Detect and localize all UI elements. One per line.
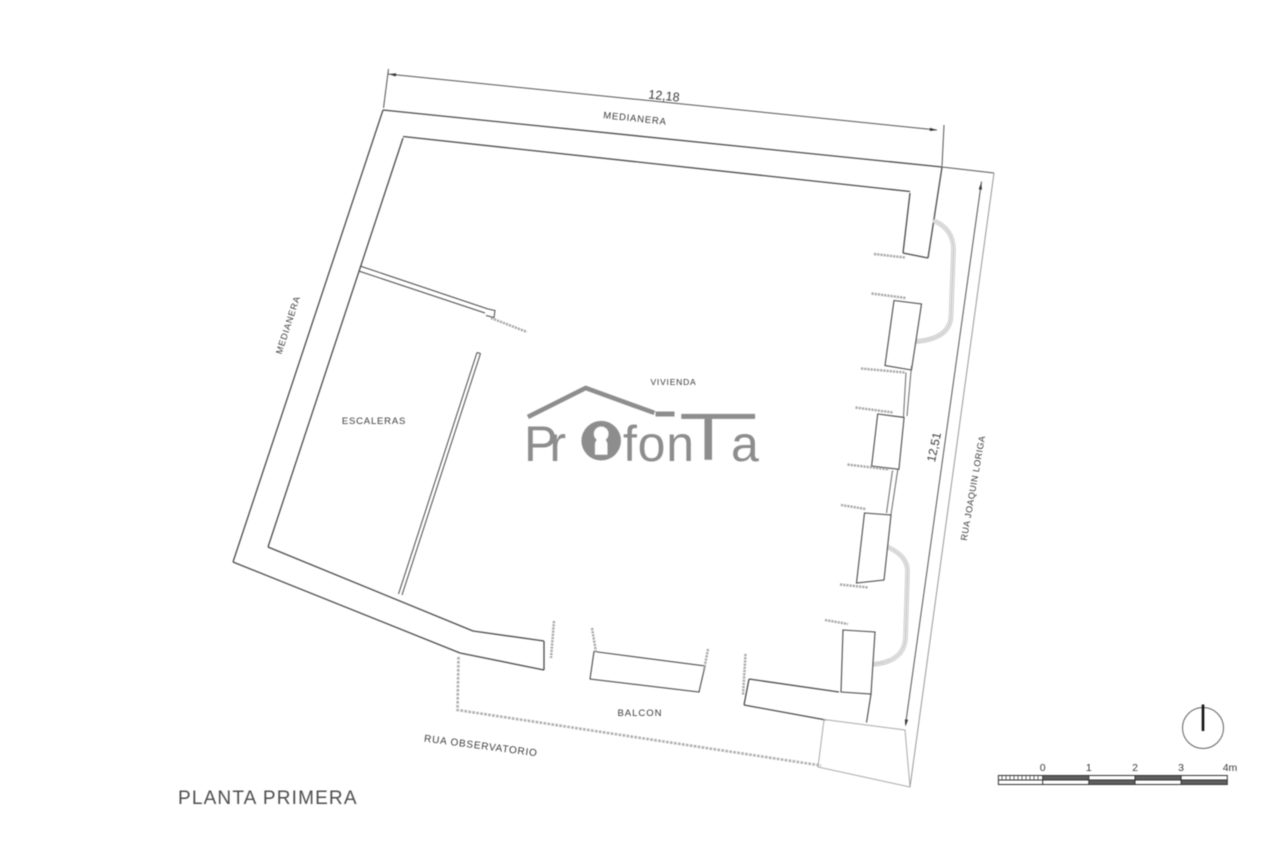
svg-text:3: 3 <box>1178 762 1184 774</box>
svg-text:a: a <box>731 416 759 472</box>
svg-text:VIVIENDA: VIVIENDA <box>650 377 696 387</box>
svg-text:BALCON: BALCON <box>617 708 662 719</box>
svg-text:1: 1 <box>1086 762 1092 774</box>
svg-text:ESCALERAS: ESCALERAS <box>342 416 406 427</box>
svg-text:PLANTA PRIMERA: PLANTA PRIMERA <box>178 788 359 809</box>
svg-text:2: 2 <box>1132 762 1138 774</box>
svg-text:fon: fon <box>623 416 694 472</box>
svg-text:Pr: Pr <box>524 416 566 472</box>
svg-text:0: 0 <box>1040 762 1046 774</box>
svg-text:4m: 4m <box>1223 762 1238 774</box>
